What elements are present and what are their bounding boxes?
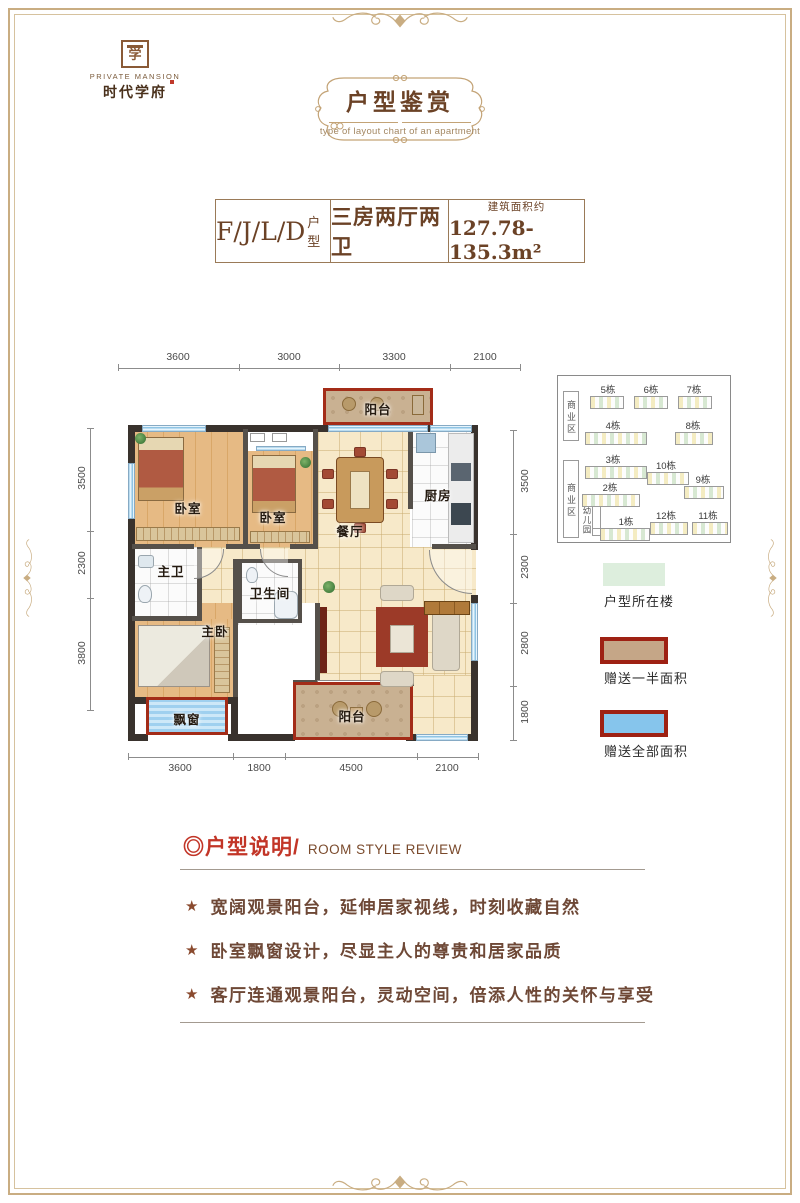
partition-h3: [290, 544, 318, 549]
page-subtitle: type of layout chart of an apartment: [310, 126, 490, 137]
dim-tick: [87, 428, 94, 429]
window-niche: [256, 446, 306, 451]
ac-unit-2: [272, 433, 287, 442]
kitchen-sink: [451, 463, 471, 481]
site-building: [684, 486, 724, 499]
brand-logo: 学 PRIVATE MANSION 时代学府: [70, 40, 200, 102]
brand-seal-icon: 学: [121, 40, 149, 68]
room-label-master-bedroom: 主卧: [185, 621, 245, 640]
dim-left-3: 3800: [76, 623, 88, 683]
dim-bottom-4: 2100: [417, 762, 477, 774]
dim-bottom-3: 4500: [321, 762, 381, 774]
partition-h1: [132, 544, 194, 549]
window-left-wall: [128, 463, 135, 519]
window-kitchen: [430, 425, 472, 432]
unit-code-cell: F/J/L/D 户型: [216, 200, 331, 262]
review-bullet-text: 客厅连通观景阳台，灵动空间，倍添人性的关怀与享受: [210, 981, 654, 1006]
wall-jog: [231, 697, 238, 741]
review-bullet-text: 宽阔观景阳台，延伸居家视线，时刻收藏自然: [210, 893, 580, 918]
building-label: 12栋: [649, 508, 683, 522]
building-label: 3栋: [596, 452, 630, 466]
partition-h2: [226, 544, 260, 549]
bed-a: [138, 437, 184, 501]
plant: [135, 433, 146, 444]
partition-kitchen-bottom: [432, 544, 476, 549]
coffee-table: [390, 625, 414, 653]
legend-label-full-area: 赠送全部面积: [604, 741, 688, 760]
review-title: ◎户型说明/ ROOM STYLE REVIEW: [183, 831, 462, 861]
tv-cabinet: [320, 607, 327, 673]
dim-line-left: [90, 428, 91, 710]
dining-chair: [354, 447, 366, 457]
site-building: [647, 472, 689, 485]
dim-tick: [339, 364, 340, 371]
room-label-kitchen: 厨房: [408, 485, 468, 504]
site-building: [675, 432, 713, 445]
dim-tick: [450, 364, 451, 371]
room-label-bay-window: 飘窗: [157, 709, 217, 728]
fridge: [416, 433, 436, 453]
partition-bedrooms: [243, 429, 248, 547]
site-building: [582, 494, 640, 507]
building-label: 11栋: [691, 508, 725, 522]
dim-line-right: [513, 430, 514, 740]
legend-label-half-area: 赠送一半面积: [604, 668, 688, 687]
site-building: [650, 522, 688, 535]
dim-tick: [520, 364, 521, 371]
dim-tick: [510, 686, 517, 687]
kitchen-stove: [451, 503, 471, 525]
window-bedroom-a: [142, 425, 206, 432]
building-label: 7栋: [677, 382, 711, 396]
dim-top-1: 3600: [148, 351, 208, 363]
dim-tick: [233, 753, 234, 760]
dining-chair: [386, 469, 398, 479]
review-title-en: ROOM STYLE REVIEW: [308, 842, 462, 857]
building-label: 2栋: [593, 480, 627, 494]
dim-right-3: 2800: [519, 613, 531, 673]
room-label-balcony-bottom: 阳台: [322, 706, 382, 725]
legend-label-current-building: 户型所在楼: [604, 591, 674, 610]
building-label: 6栋: [634, 382, 668, 396]
dining-runner: [350, 471, 370, 509]
review-bullet-row: ★ 客厅连通观景阳台，灵动空间，倍添人性的关怀与享受: [185, 981, 654, 1006]
ac-unit-1: [250, 433, 265, 442]
review-title-cn: ◎户型说明/: [183, 831, 300, 861]
site-building: [678, 396, 712, 409]
building-label: 10栋: [649, 458, 683, 472]
building-label: 9栋: [686, 472, 720, 486]
room-label-bedroom-b: 卧室: [243, 507, 303, 526]
dim-left-1: 3500: [76, 448, 88, 508]
frame-ornament-bottom: [330, 1168, 470, 1196]
frame-ornament-right: [765, 538, 781, 618]
wall-bottom-1: [128, 734, 148, 741]
room-label-bedroom-a: 卧室: [158, 498, 218, 517]
building-label: 5栋: [591, 382, 625, 396]
unit-code: F/J/L/D: [216, 217, 305, 246]
dim-tick: [118, 364, 119, 371]
shoe-cabinet: [424, 601, 470, 615]
star-icon: ★: [185, 941, 198, 959]
dim-tick: [87, 531, 94, 532]
dim-line-top: [118, 368, 520, 369]
legend-swatch-half-area: [600, 637, 668, 664]
floor-plan: 3600 3000 3300 2100 3600 1800 4500 2100 …: [80, 345, 550, 777]
sofa-side-1: [380, 585, 414, 601]
dim-left-2: 2300: [76, 533, 88, 593]
balcony-top-shelf: [412, 395, 424, 415]
room-label-master-bath: 主卫: [141, 561, 201, 580]
room-label-balcony-top: 阳台: [348, 399, 408, 418]
window-right-wall: [471, 603, 478, 661]
poster-page: 学 PRIVATE MANSION 时代学府 户型鉴赏 type of layo…: [0, 0, 800, 1203]
seal-character: 学: [123, 49, 147, 62]
dim-top-2: 3000: [259, 351, 319, 363]
dim-top-4: 2100: [455, 351, 515, 363]
sofa-side-2: [380, 671, 414, 687]
dim-right-1: 3500: [519, 451, 531, 511]
site-building: [600, 528, 650, 541]
star-icon: ★: [185, 897, 198, 915]
dim-tick: [510, 430, 517, 431]
review-bullet-row: ★ 卧室飘窗设计，尽显主人的尊贵和居家品质: [185, 937, 562, 962]
bed-b: [252, 455, 296, 513]
site-building: [585, 466, 647, 479]
window-balcony-wall: [328, 425, 428, 432]
site-plan: 商业区 商业区 幼儿园 5栋 6栋 7栋 4栋 8栋 3栋 10栋 2栋 9栋 …: [557, 375, 731, 543]
commercial-zone-bottom: 商业区: [563, 460, 579, 538]
dim-bottom-2: 1800: [229, 762, 289, 774]
plant: [300, 457, 311, 468]
legend-swatch-full-area: [600, 710, 668, 737]
page-title: 户型鉴赏: [310, 83, 490, 117]
toilet-master: [138, 585, 152, 603]
dim-tick: [478, 753, 479, 760]
brand-name-en: PRIVATE MANSION: [70, 72, 200, 81]
room-label-dining: 餐厅: [320, 521, 380, 540]
frame-ornament-top: [330, 7, 470, 35]
unit-layout-cell: 三房两厅两卫: [331, 200, 449, 262]
brand-name-cn: 时代学府: [103, 82, 167, 102]
legend-swatch-current-building: [603, 563, 665, 586]
dim-tick: [285, 753, 286, 760]
review-divider-bottom: [180, 1022, 645, 1023]
dim-tick: [510, 534, 517, 535]
trademark-dot: [170, 80, 174, 84]
site-building: [590, 396, 624, 409]
toilet-guest: [246, 567, 258, 583]
site-building: [692, 522, 728, 535]
commercial-zone-top: 商业区: [563, 391, 579, 441]
building-label: 1栋: [609, 514, 643, 528]
area-value: 127.78-135.3m²: [449, 216, 584, 264]
window-bottom-right: [416, 734, 468, 741]
site-building: [634, 396, 668, 409]
star-icon: ★: [185, 985, 198, 1003]
header-cartouche: 户型鉴赏 type of layout chart of an apartmen…: [310, 70, 490, 154]
review-divider-top: [180, 869, 645, 870]
dim-tick: [87, 598, 94, 599]
building-label: 4栋: [596, 418, 630, 432]
wardrobe-b: [250, 531, 310, 543]
review-bullet-text: 卧室飘窗设计，尽显主人的尊贵和居家品质: [210, 937, 562, 962]
title-divider: [329, 122, 471, 123]
area-label: 建筑面积约: [488, 199, 546, 214]
dim-tick: [510, 740, 517, 741]
review-bullet-row: ★ 宽阔观景阳台，延伸居家视线，时刻收藏自然: [185, 893, 580, 918]
dining-chair: [386, 499, 398, 509]
dim-tick: [128, 753, 129, 760]
dim-tick: [87, 710, 94, 711]
dining-chair: [322, 499, 334, 509]
wall-bottom-2: [228, 734, 295, 741]
site-building: [585, 432, 647, 445]
frame-ornament-left: [19, 538, 35, 618]
building-label: 8栋: [676, 418, 710, 432]
wardrobe-a: [136, 527, 240, 541]
dim-tick: [510, 603, 517, 604]
living-floor-right: [412, 675, 476, 735]
dim-bottom-1: 3600: [150, 762, 210, 774]
dim-right-4: 1800: [519, 682, 531, 742]
dining-chair: [322, 469, 334, 479]
unit-area-cell: 建筑面积约 127.78-135.3m²: [449, 200, 584, 262]
dim-tick: [417, 753, 418, 760]
unit-code-suffix: 户型: [307, 212, 330, 250]
dim-tick: [239, 364, 240, 371]
brand-name-cn-text: 时代学府: [103, 85, 167, 101]
plant: [323, 581, 335, 593]
unit-info-bar: F/J/L/D 户型 三房两厅两卫 建筑面积约 127.78-135.3m²: [215, 199, 585, 263]
partition-bedroom-dining: [313, 429, 318, 547]
dim-top-3: 3300: [364, 351, 424, 363]
room-label-bathroom: 卫生间: [240, 583, 300, 602]
dim-right-2: 2300: [519, 537, 531, 597]
dim-line-bottom: [128, 757, 478, 758]
